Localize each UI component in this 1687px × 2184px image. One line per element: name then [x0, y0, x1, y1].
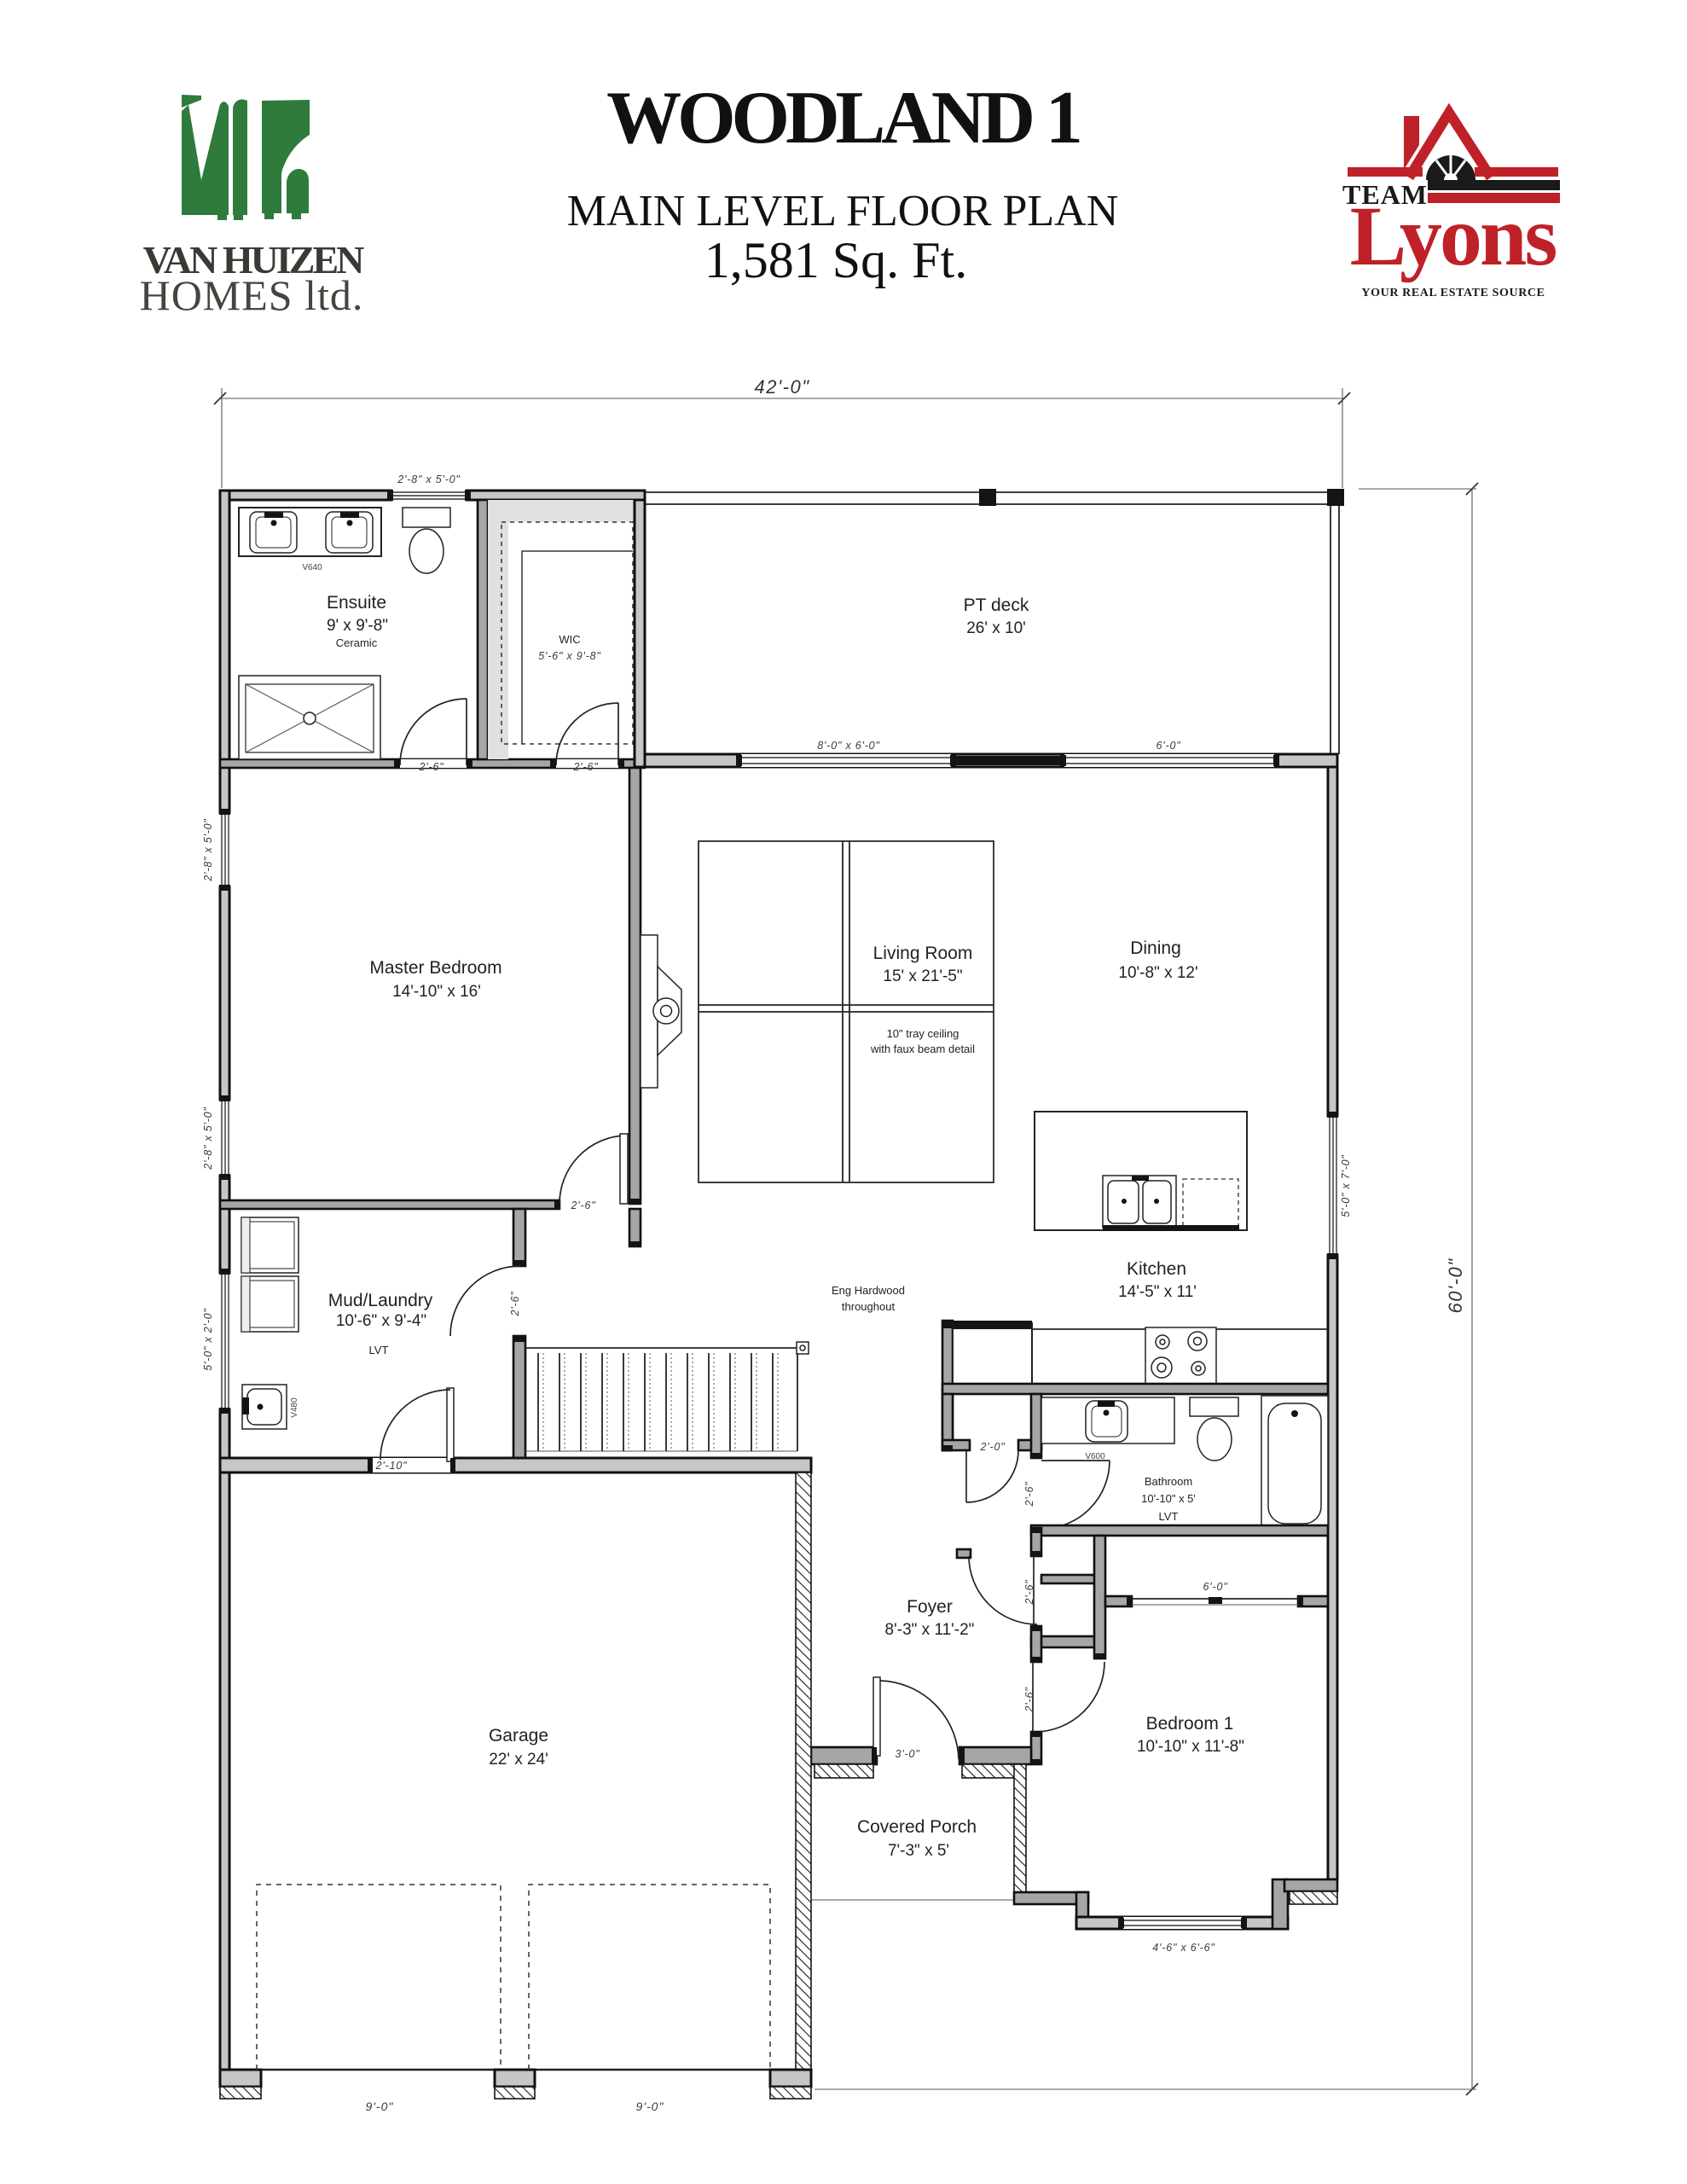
svg-text:Master Bedroom: Master Bedroom: [369, 958, 501, 978]
svg-text:2'-6": 2'-6": [1023, 1482, 1035, 1507]
svg-text:6'-0": 6'-0": [1157, 740, 1181, 752]
svg-text:Dining: Dining: [1130, 938, 1181, 958]
svg-text:YOUR REAL ESTATE SOURCE: YOUR REAL ESTATE SOURCE: [1361, 287, 1545, 299]
svg-text:2'-10": 2'-10": [375, 1460, 408, 1472]
svg-text:2'-8" x 5'-0": 2'-8" x 5'-0": [202, 1107, 214, 1170]
svg-text:4'-6" x 6'-6": 4'-6" x 6'-6": [1152, 1942, 1215, 1954]
svg-text:26' x 10': 26' x 10': [966, 619, 1026, 637]
svg-text:Garage: Garage: [489, 1726, 548, 1745]
svg-text:2'-8" x 5'-0": 2'-8" x 5'-0": [202, 818, 214, 881]
svg-text:Living Room: Living Room: [873, 944, 973, 963]
svg-text:9'-0": 9'-0": [636, 2100, 664, 2113]
svg-text:22' x 24': 22' x 24': [489, 1751, 548, 1769]
svg-text:with faux beam detail: with faux beam detail: [870, 1043, 975, 1055]
svg-text:2'-6": 2'-6": [419, 761, 444, 773]
svg-text:7'-3" x 5': 7'-3" x 5': [888, 1842, 949, 1860]
svg-text:60'-0": 60'-0": [1445, 1258, 1466, 1313]
svg-text:WIC: WIC: [559, 633, 580, 646]
svg-text:Mud/Laundry: Mud/Laundry: [328, 1291, 433, 1310]
svg-text:2'-6": 2'-6": [571, 1199, 596, 1211]
svg-text:V600: V600: [1085, 1452, 1105, 1461]
svg-text:LVT: LVT: [369, 1344, 389, 1356]
svg-text:10'-6" x 9'-4": 10'-6" x 9'-4": [336, 1312, 426, 1330]
svg-text:HOMES ltd.: HOMES ltd.: [140, 271, 364, 319]
svg-text:10'-8" x 12': 10'-8" x 12': [1118, 964, 1197, 982]
svg-text:MAIN LEVEL FLOOR PLAN: MAIN LEVEL FLOOR PLAN: [567, 187, 1119, 235]
svg-text:V480: V480: [290, 1397, 299, 1418]
svg-text:PT deck: PT deck: [964, 595, 1029, 615]
svg-text:Bathroom: Bathroom: [1145, 1475, 1192, 1488]
svg-text:9' x 9'-8": 9' x 9'-8": [327, 617, 388, 635]
svg-text:14'-5" x 11': 14'-5" x 11': [1118, 1283, 1197, 1301]
svg-text:5'-0" x 2'-0": 5'-0" x 2'-0": [202, 1308, 214, 1370]
svg-text:10" tray ceiling: 10" tray ceiling: [887, 1027, 959, 1040]
svg-text:2'-6": 2'-6": [573, 761, 599, 773]
svg-text:3'-0": 3'-0": [896, 1748, 920, 1760]
svg-text:8'-0" x 6'-0": 8'-0" x 6'-0": [817, 740, 879, 752]
svg-text:V640: V640: [302, 563, 322, 572]
svg-text:Ensuite: Ensuite: [327, 593, 386, 613]
svg-text:Ceramic: Ceramic: [336, 636, 378, 649]
svg-text:WOODLAND 1: WOODLAND 1: [606, 77, 1080, 160]
svg-text:5'-6" x 9'-8": 5'-6" x 9'-8": [538, 650, 600, 662]
svg-text:Kitchen: Kitchen: [1127, 1259, 1186, 1279]
svg-text:6'-0": 6'-0": [1203, 1581, 1228, 1593]
svg-text:5'-0" x 7'-0": 5'-0" x 7'-0": [1340, 1154, 1352, 1217]
svg-text:throughout: throughout: [842, 1300, 896, 1313]
svg-text:LVT: LVT: [1159, 1510, 1179, 1523]
svg-text:2'-6": 2'-6": [509, 1292, 521, 1317]
svg-text:10'-10" x 5': 10'-10" x 5': [1141, 1492, 1196, 1505]
svg-text:1,581 Sq. Ft.: 1,581 Sq. Ft.: [704, 232, 967, 288]
svg-text:Lyons: Lyons: [1350, 189, 1557, 283]
svg-text:2'-8" x 5'-0": 2'-8" x 5'-0": [397, 473, 460, 485]
svg-text:Bedroom 1: Bedroom 1: [1146, 1714, 1234, 1734]
svg-text:Eng Hardwood: Eng Hardwood: [832, 1284, 905, 1297]
svg-text:2'-0": 2'-0": [980, 1441, 1006, 1453]
svg-text:42'-0": 42'-0": [754, 376, 809, 398]
svg-text:2'-6": 2'-6": [1023, 1580, 1035, 1606]
svg-text:10'-10" x 11'-8": 10'-10" x 11'-8": [1137, 1738, 1244, 1756]
svg-text:2'-6": 2'-6": [1023, 1687, 1035, 1713]
svg-text:14'-10" x 16': 14'-10" x 16': [392, 983, 481, 1001]
svg-text:15' x 21'-5": 15' x 21'-5": [883, 967, 962, 985]
svg-text:Covered Porch: Covered Porch: [857, 1817, 977, 1837]
svg-text:Foyer: Foyer: [907, 1597, 953, 1617]
svg-text:8'-3" x 11'-2": 8'-3" x 11'-2": [885, 1621, 975, 1639]
svg-text:9'-0": 9'-0": [366, 2100, 394, 2113]
